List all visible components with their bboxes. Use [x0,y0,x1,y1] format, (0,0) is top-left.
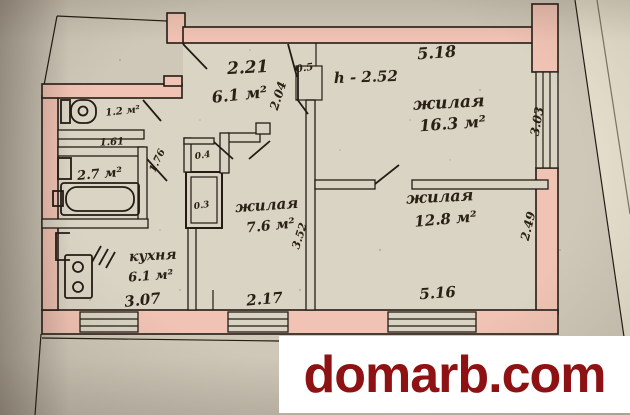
scanned-page-edge [575,0,630,378]
window-room-bottom-right [388,312,476,332]
floor-plan-photo: 2.21 6.1 м² 0.5 2.04 h - 2.52 5.18 жилая… [0,0,630,415]
kitchen-area: 6.1 м² [128,267,174,285]
window-kitchen [80,312,138,332]
dim-room1-width: 5.18 [417,42,457,64]
dim-room3-width: 5.16 [419,283,457,304]
watermark-text: domarb.com [303,349,605,401]
window-room-middle [228,312,288,332]
dim-room2-width: 2.17 [245,288,285,309]
watermark-banner: domarb.com [279,336,630,413]
ceiling-height-note: h - 2.52 [333,67,398,87]
kitchen-name: кухня [129,247,177,265]
room1-name: жилая [412,91,484,115]
dim-kitchen-width: 3.07 [123,289,162,311]
dim-toilet-width: 1.61 [99,136,124,148]
dim-hall-width: 2.21 [226,57,269,79]
room3-name: жилая [406,185,474,207]
